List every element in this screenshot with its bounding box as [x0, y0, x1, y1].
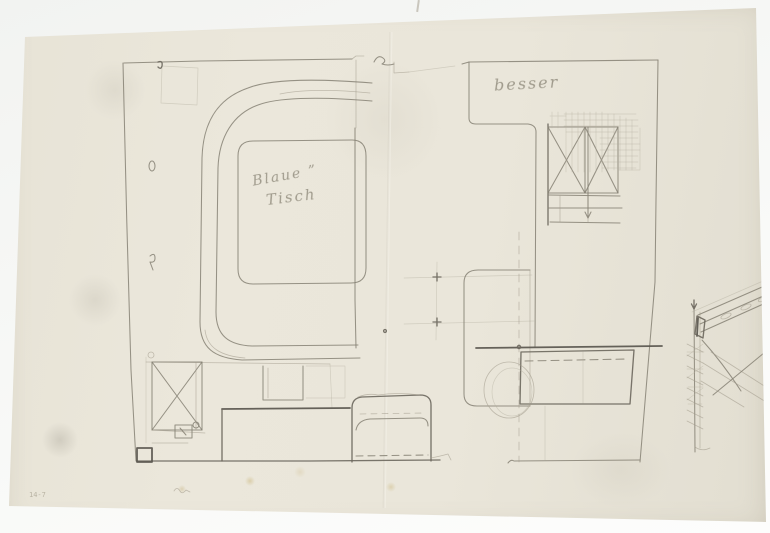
background-edge-mark — [416, 0, 420, 12]
sofa-elevation — [352, 394, 451, 463]
cabinet-small-rects — [263, 364, 345, 408]
wall-section-detail — [687, 278, 770, 452]
circle-faint-arcs — [484, 362, 534, 418]
counter-dark-rect — [476, 232, 662, 462]
handwriting-note-besser: besser — [494, 72, 560, 94]
paper-sheet: Blaue ” Tisch besser 14-7 — [0, 0, 770, 533]
construction-guides — [384, 262, 534, 340]
sketch-drawing — [0, 0, 770, 533]
photo-frame: Blaue ” Tisch besser 14-7 — [0, 0, 770, 533]
right-plan-outline — [462, 60, 658, 463]
inventory-number: 14-7 — [29, 491, 46, 499]
storage-hatched-block — [548, 112, 640, 225]
seating-curve — [200, 80, 372, 360]
scribble-mark — [174, 489, 190, 493]
furniture-crossed-block — [146, 352, 330, 443]
table-square — [238, 140, 366, 284]
left-plan-lower-walls — [137, 408, 440, 462]
